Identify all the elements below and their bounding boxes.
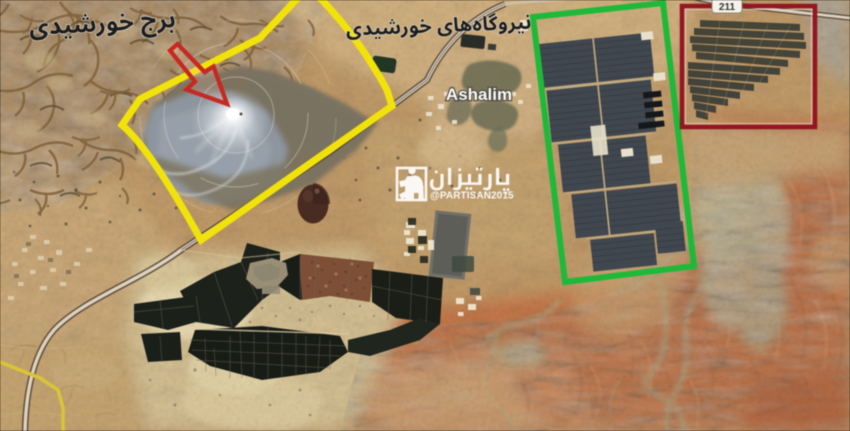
svg-text:Ashalim: Ashalim bbox=[446, 85, 512, 104]
svg-text:@PARTISAN2015: @PARTISAN2015 bbox=[430, 191, 514, 202]
svg-text:211: 211 bbox=[719, 2, 736, 13]
